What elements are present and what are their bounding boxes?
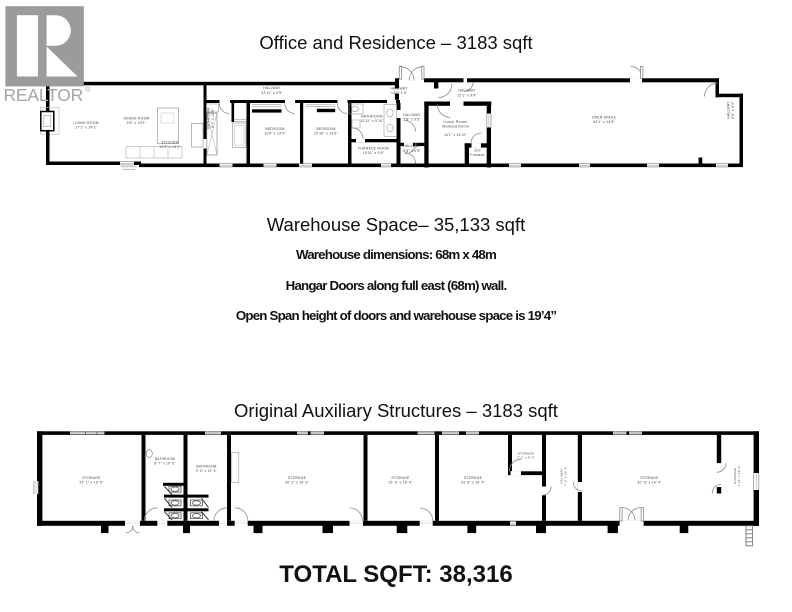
svg-text:7' 8" x 19' 0": 7' 8" x 19' 0" [564,466,568,486]
svg-text:13'3" x 14'1": 13'3" x 14'1" [159,145,181,149]
svg-text:5'6" x 5'5": 5'6" x 5'5" [731,101,735,119]
svg-text:KITCHEN: KITCHEN [162,140,179,144]
svg-text:BEDROOM: BEDROOM [265,127,284,131]
svg-text:17'1" x 14'1": 17'1" x 14'1" [75,126,97,130]
svg-text:LIVING ROOM: LIVING ROOM [73,121,98,125]
svg-text:23' 5" x 19' 4": 23' 5" x 19' 4" [461,481,486,485]
svg-text:14'1" x 13'10": 14'1" x 13'10" [444,133,467,137]
svg-text:BATHROOM: BATHROOM [196,464,216,468]
svg-text:13'11" x 9'10": 13'11" x 9'10" [360,119,384,123]
svg-text:9'5" x 19'1": 9'5" x 19'1" [127,121,147,125]
svg-text:5'8" x 6'5": 5'8" x 6'5" [403,149,421,153]
svg-text:30' 6" x 19' 4": 30' 6" x 19' 4" [637,481,662,485]
svg-text:HALLWAY: HALLWAY [390,87,408,91]
svg-text:10'11" x 9'5": 10'11" x 9'5" [363,151,385,155]
svg-text:Lunch Room/: Lunch Room/ [443,120,467,124]
svg-text:7' 11" x 19' 4": 7' 11" x 19' 4" [737,465,741,487]
svg-text:HALLWAY: HALLWAY [458,89,476,93]
svg-text:STORAGE: STORAGE [288,476,307,480]
svg-text:13'5" x 5': 13'5" x 5' [391,91,407,95]
svg-text:BATHROOM: BATHROOM [361,114,382,118]
svg-text:32'11" x 3'9": 32'11" x 3'9" [261,91,283,95]
svg-text:30' 1" x 19' 6": 30' 1" x 19' 6" [285,481,310,485]
svg-text:9'7" x 13'9": 9'7" x 13'9" [211,108,215,128]
svg-text:HALLWAY: HALLWAY [403,144,421,148]
svg-text:®: ® [85,85,91,94]
svg-text:BATHROOM: BATHROOM [206,107,210,128]
svg-text:2nd: 2nd [474,148,480,152]
svg-text:STORAGE: STORAGE [391,476,410,480]
svg-text:HALLWAY: HALLWAY [263,86,281,90]
svg-text:FURNACE ROOM: FURNACE ROOM [358,146,389,150]
svg-text:HALLWAY: HALLWAY [403,113,421,117]
svg-text:11'6" x 13'9": 11'6" x 13'9" [264,132,286,136]
svg-text:15' 6" x 19' 4": 15' 6" x 19' 4" [388,481,413,485]
svg-text:Workout Room: Workout Room [442,125,469,129]
svg-text:BEDROOM: BEDROOM [316,127,335,131]
svg-text:DINING ROOM: DINING ROOM [123,116,149,120]
svg-text:OPEN SPACE: OPEN SPACE [592,116,617,120]
svg-text:REALTOR: REALTOR [4,85,85,105]
svg-text:10'10" x 13'9": 10'10" x 13'9" [314,132,339,136]
svg-text:STORAGE: STORAGE [464,476,483,480]
svg-text:8' 7" x 19' 6": 8' 7" x 19' 6" [155,461,176,465]
svg-text:BATHROOM: BATHROOM [155,457,175,461]
svg-text:Furnace: Furnace [470,153,484,157]
svg-text:HALLWAY: HALLWAY [726,101,730,119]
svg-text:STORAGE: STORAGE [82,476,101,480]
svg-text:23' 1" x 19' 6": 23' 1" x 19' 6" [79,481,104,485]
svg-text:STORAGE: STORAGE [640,476,659,480]
svg-text:12'1" x 9'9": 12'1" x 9'9" [457,93,477,97]
svg-text:5'8" x 9'5": 5'8" x 9'5" [403,118,421,122]
svg-text:9' 0" x 19' 6": 9' 0" x 19' 6" [196,469,217,473]
svg-text:7' 1" x 8' 3": 7' 1" x 8' 3" [517,456,535,460]
svg-text:34'1" x 14'8": 34'1" x 14'8" [593,120,615,124]
